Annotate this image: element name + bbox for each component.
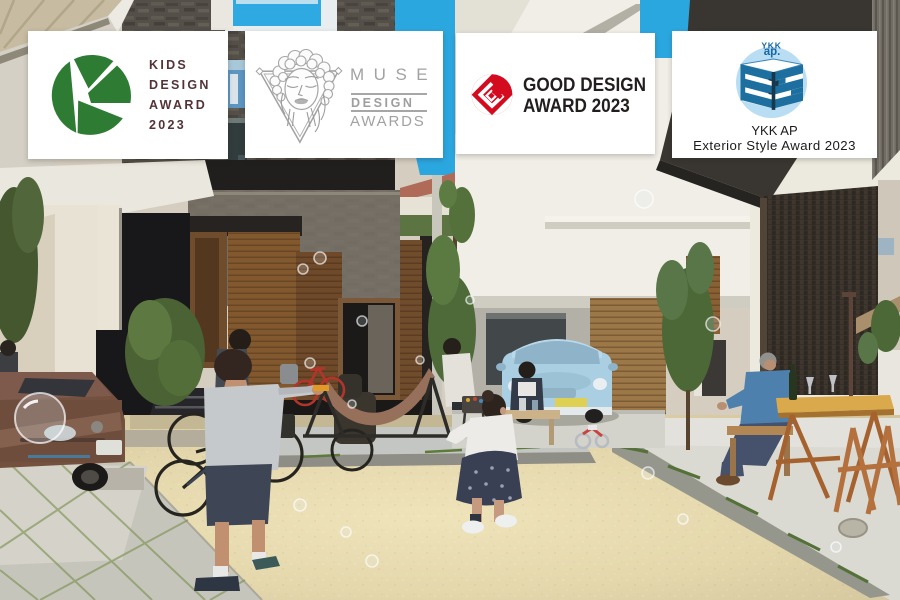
svg-text:ap.: ap. — [764, 46, 781, 58]
